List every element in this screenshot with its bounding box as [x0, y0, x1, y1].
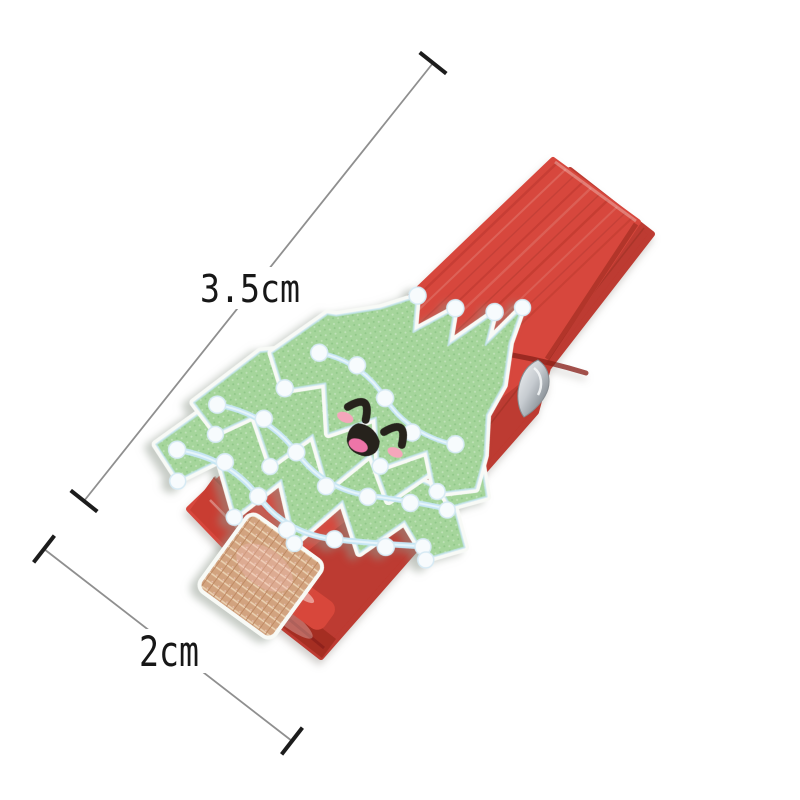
dimension-length-tick-bottom	[71, 490, 98, 511]
product-photo-canvas: 3.5cm 2cm	[0, 0, 800, 800]
dimension-width-tick-left	[34, 536, 55, 563]
product-photo: 3.5cm 2cm	[0, 0, 800, 800]
dimension-width-tick-right	[282, 728, 303, 755]
dimension-width-label: 2cm	[139, 627, 199, 676]
dimension-length-tick-top	[420, 52, 447, 73]
dimension-length-label: 3.5cm	[200, 267, 300, 311]
